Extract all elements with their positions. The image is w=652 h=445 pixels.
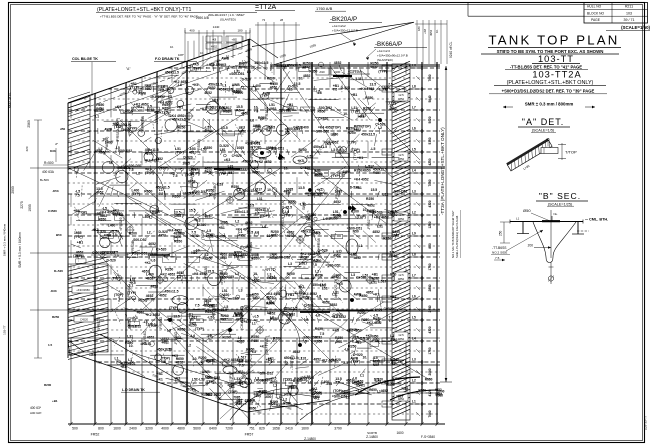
svg-text:4320: 4320: [428, 326, 432, 333]
svg-text:C4520: C4520: [48, 209, 57, 213]
svg-text:+B1: +B1: [157, 372, 163, 376]
svg-text:-FR52D: -FR52D: [97, 316, 101, 330]
svg-text:4652: 4652: [205, 393, 212, 397]
svg-text:10.: 10.: [363, 208, 368, 212]
svg-text:15.5: 15.5: [248, 203, 255, 207]
svg-text:4652: 4652: [147, 336, 155, 340]
svg-text:1.5: 1.5: [48, 343, 53, 347]
svg-text:(TOP): (TOP): [159, 167, 168, 171]
svg-text:4000: 4000: [161, 427, 169, 431]
svg-text:4852: 4852: [330, 303, 338, 307]
svg-text:(PLATE+LONGT.+STL.+BKT ONLY)-T: (PLATE+LONGT.+STL.+BKT ONLY)-TT1: [97, 7, 192, 13]
svg-text:NO.1 S/G TK BOUNDARY SEAM "A02: NO.1 S/G TK BOUNDARY SEAM "A02": [451, 210, 455, 258]
svg-text:NO.2 SIDE: NO.2 SIDE: [492, 251, 507, 255]
svg-text:7085: 7085: [233, 395, 240, 399]
svg-text:15.5: 15.5: [247, 230, 254, 234]
svg-text:D-520: D-520: [341, 86, 350, 90]
svg-text:R200: R200: [44, 383, 52, 387]
svg-text:+B1: +B1: [306, 217, 312, 221]
svg-text:C+520: C+520: [156, 247, 166, 251]
svg-text:450x11.5: 450x11.5: [165, 290, 179, 294]
svg-text:7680: 7680: [428, 410, 432, 417]
svg-text:=S00-D51: =S00-D51: [347, 227, 362, 231]
svg-text:13.5: 13.5: [267, 234, 274, 238]
svg-text:2590 A/B: 2590 A/B: [196, 16, 209, 20]
svg-text:R650: R650: [270, 317, 278, 321]
svg-text:R250: R250: [234, 312, 242, 316]
svg-text:+K1: +K1: [229, 385, 235, 389]
svg-text:1440: 1440: [213, 25, 220, 29]
svg-text:L3: L3: [239, 289, 243, 293]
svg-text:+K2 4652: +K2 4652: [220, 171, 235, 175]
svg-text:R250: R250: [366, 197, 374, 201]
svg-text:4652: 4652: [142, 270, 150, 274]
svg-text:+K5: +K5: [220, 63, 226, 67]
svg-text:R650: R650: [389, 254, 397, 258]
svg-text:L1: L1: [360, 373, 364, 377]
svg-text:2080: 2080: [428, 368, 432, 375]
svg-text:4952: 4952: [174, 214, 182, 218]
svg-text:-L53: -L53: [326, 382, 333, 386]
svg-text:AWB: AWB: [232, 83, 240, 87]
svg-text:L4: L4: [412, 169, 416, 173]
svg-text:L2: L2: [412, 211, 416, 215]
svg-text:R=500: R=500: [44, 161, 54, 165]
svg-text:450x11.5: 450x11.5: [157, 348, 171, 352]
svg-text:(SLANTED): (SLANTED): [377, 58, 393, 62]
svg-text:4852: 4852: [334, 61, 342, 65]
svg-text:450x11.5: 450x11.5: [219, 88, 233, 92]
svg-text:1760: 1760: [428, 263, 432, 270]
svg-text:-FR529: -FR529: [119, 217, 123, 230]
svg-text:R650: R650: [172, 194, 180, 198]
svg-text:4852: 4852: [398, 97, 405, 101]
svg-text:L51: L51: [222, 289, 228, 293]
svg-text:R650: R650: [369, 388, 377, 392]
svg-text:4852: 4852: [313, 358, 321, 362]
svg-text:-L6: -L6: [143, 320, 148, 324]
svg-text:39 / 71: 39 / 71: [624, 18, 635, 22]
svg-text:-L53: -L53: [216, 183, 223, 187]
svg-text:L900: L900: [334, 70, 341, 74]
svg-text:R650: R650: [98, 218, 106, 222]
svg-text:R650: R650: [363, 168, 371, 172]
svg-text:-L6: -L6: [317, 91, 322, 95]
svg-text:400: 400: [189, 29, 194, 33]
svg-text:2275: 2275: [20, 201, 24, 209]
svg-text:+S00+D1/DS1.D2/DS2 DET. REF. T: +S00+D1/DS1.D2/DS2 DET. REF. TO "39" PAG…: [502, 89, 595, 94]
svg-text:-TT-B6SS: -TT-B6SS: [492, 246, 507, 250]
svg-text:4652: 4652: [235, 401, 242, 405]
svg-text:+K2 4652: +K2 4652: [321, 358, 336, 362]
svg-text:10.: 10.: [102, 137, 107, 141]
svg-text:R650: R650: [239, 65, 247, 69]
svg-text:-S00-D52: -S00-D52: [118, 149, 133, 153]
svg-text:4652: 4652: [331, 275, 339, 279]
svg-text:4952: 4952: [176, 361, 184, 365]
svg-text:+K2 4652: +K2 4652: [367, 321, 382, 325]
svg-text:L2: L2: [378, 126, 382, 130]
svg-text:=K3: =K3: [115, 105, 121, 109]
svg-text:L400: L400: [189, 167, 197, 171]
svg-text:4652: 4652: [270, 86, 278, 90]
svg-text:-L6: -L6: [315, 313, 320, 317]
svg-text:4652: 4652: [219, 106, 227, 110]
svg-text:(TYP): (TYP): [175, 167, 184, 171]
svg-text:C+520: C+520: [241, 320, 251, 324]
svg-text:R350: R350: [309, 69, 317, 73]
svg-text:450x11.5: 450x11.5: [275, 64, 289, 68]
svg-text:450x11.5: 450x11.5: [213, 308, 227, 312]
svg-text:=K3: =K3: [355, 340, 361, 344]
svg-text:7.5: 7.5: [114, 254, 119, 258]
svg-text:=TT2A: =TT2A: [255, 4, 277, 11]
svg-text:(TYP): (TYP): [351, 360, 360, 364]
svg-text:4852: 4852: [151, 284, 159, 288]
svg-text:A90: A90: [319, 70, 325, 74]
svg-text:4652: 4652: [146, 276, 154, 280]
svg-text:7.5: 7.5: [254, 109, 259, 113]
svg-text:5160: 5160: [428, 137, 432, 144]
svg-text:4852: 4852: [94, 109, 102, 113]
svg-text:2040: 2040: [428, 305, 432, 312]
svg-text:10.: 10.: [267, 188, 272, 192]
svg-text:7.5: 7.5: [495, 256, 500, 260]
svg-text:-S00-D52: -S00-D52: [393, 190, 408, 194]
svg-text:R650: R650: [251, 257, 259, 261]
svg-text:C+520: C+520: [293, 125, 303, 129]
svg-text:7085: 7085: [401, 387, 408, 391]
svg-text:L1: L1: [279, 395, 283, 399]
svg-text:Z-14800: Z-14800: [304, 437, 316, 441]
svg-text:COL BILGE TK: COL BILGE TK: [72, 57, 98, 61]
svg-text:4652: 4652: [148, 242, 156, 246]
svg-text:R650: R650: [267, 276, 275, 280]
svg-text:880: 880: [428, 243, 432, 249]
svg-text:7200: 7200: [225, 427, 233, 431]
svg-text:450x11.5: 450x11.5: [242, 160, 256, 164]
svg-text:F-S+3540: F-S+3540: [421, 435, 435, 439]
svg-text:4652: 4652: [369, 210, 377, 214]
svg-text:L1: L1: [516, 217, 520, 221]
svg-text:4852: 4852: [95, 149, 103, 153]
svg-text:=K3: =K3: [169, 171, 175, 175]
svg-text:D-520: D-520: [242, 78, 251, 82]
svg-text:10.: 10.: [299, 77, 304, 81]
svg-text:+B1: +B1: [288, 293, 294, 297]
svg-text:10.: 10.: [435, 29, 439, 33]
svg-text:=K4 4952: =K4 4952: [158, 100, 173, 104]
svg-text:829: 829: [259, 427, 265, 431]
svg-text:F.O DRAIN TK: F.O DRAIN TK: [155, 57, 180, 61]
svg-text:L3: L3: [331, 148, 335, 152]
svg-text:10.: 10.: [193, 357, 198, 361]
svg-text:R650: R650: [249, 406, 257, 410]
svg-text:L5: L5: [412, 148, 416, 152]
svg-text:L1: L1: [412, 400, 416, 404]
svg-text:FR57: FR57: [245, 433, 254, 437]
svg-text:1905: 1905: [28, 204, 32, 212]
svg-text:4852: 4852: [284, 190, 292, 194]
svg-text:L31: L31: [234, 70, 240, 74]
svg-text:450x11.5: 450x11.5: [361, 133, 375, 137]
svg-text:751: 751: [249, 427, 255, 431]
svg-text:+K1: +K1: [357, 156, 363, 160]
svg-text:4652: 4652: [315, 174, 323, 178]
svg-text:R250: R250: [348, 131, 356, 135]
svg-text:-K8: -K8: [212, 38, 217, 42]
svg-text:L9: L9: [412, 232, 416, 236]
svg-text:"B" SEC.: "B" SEC.: [539, 191, 581, 201]
svg-text:L8: L8: [412, 253, 416, 257]
svg-text:L1: L1: [115, 357, 119, 361]
svg-text:1600: 1600: [261, 379, 268, 383]
svg-text:-K33: -K33: [50, 289, 57, 293]
svg-text:4652: 4652: [240, 381, 247, 385]
svg-text:B50: B50: [56, 233, 62, 237]
svg-text:(TYP): (TYP): [146, 297, 155, 301]
svg-text:400 63*: 400 63*: [30, 406, 42, 410]
svg-text:L1: L1: [95, 115, 99, 119]
svg-text:7.5: 7.5: [129, 168, 134, 172]
svg-text:+K1: +K1: [260, 345, 266, 349]
svg-text:1600: 1600: [113, 427, 121, 431]
svg-text:R200: R200: [273, 336, 281, 340]
svg-text:C+520: C+520: [249, 279, 259, 283]
svg-text:4852: 4852: [367, 204, 375, 208]
svg-text:7.5: 7.5: [159, 192, 164, 196]
svg-text:-S00-D52: -S00-D52: [127, 325, 142, 329]
svg-text:28: 28: [280, 18, 284, 22]
svg-text:1280: 1280: [428, 221, 432, 228]
svg-text:+K2 4652: +K2 4652: [173, 80, 188, 84]
svg-text:4852: 4852: [228, 253, 236, 257]
svg-text:L2: L2: [412, 379, 416, 383]
svg-text:L400: L400: [108, 224, 116, 228]
svg-text:R650: R650: [144, 189, 152, 193]
svg-text:L6: L6: [412, 295, 416, 299]
svg-text:N50: N50: [205, 375, 211, 379]
svg-text:Ø50: Ø50: [523, 208, 531, 213]
svg-text:(TOP): (TOP): [240, 306, 249, 310]
svg-text:+B1: +B1: [52, 399, 58, 403]
svg-text:d50: d50: [60, 127, 66, 131]
svg-text:(TOP): (TOP): [362, 124, 371, 128]
svg-text:7.5: 7.5: [320, 332, 325, 336]
svg-text:13.5: 13.5: [173, 315, 180, 319]
svg-text:L31: L31: [136, 89, 142, 93]
svg-text:4652: 4652: [245, 221, 253, 225]
svg-text:-L6: -L6: [261, 225, 266, 229]
svg-text:R650: R650: [373, 171, 381, 175]
svg-text:10.: 10.: [200, 51, 204, 55]
svg-text:L7: L7: [412, 106, 416, 110]
svg-text:D-520: D-520: [304, 304, 313, 308]
svg-text:(TYP): (TYP): [73, 254, 82, 258]
svg-text:4952: 4952: [220, 256, 228, 260]
svg-text:BLOCK NO: BLOCK NO: [587, 11, 604, 15]
svg-text:10.: 10.: [129, 344, 134, 348]
svg-text:R200: R200: [222, 336, 230, 340]
svg-text:N50: N50: [373, 363, 379, 367]
svg-text:+K1: +K1: [314, 230, 320, 234]
svg-text:R250: R250: [189, 323, 197, 327]
svg-text:7085: 7085: [436, 393, 443, 397]
svg-text:10.: 10.: [343, 112, 348, 116]
svg-text:450x11.5: 450x11.5: [234, 210, 248, 214]
svg-text:7.5: 7.5: [302, 339, 307, 343]
svg-text:+AL=12x2: +AL=12x2: [332, 24, 346, 28]
svg-text:+K5: +K5: [297, 159, 303, 163]
svg-text:L3: L3: [255, 377, 259, 381]
svg-text:L1: L1: [276, 403, 280, 407]
svg-text:R250: R250: [346, 127, 354, 131]
svg-text:+B1: +B1: [351, 93, 357, 97]
svg-text:R650: R650: [177, 327, 185, 331]
svg-text:L400: L400: [253, 84, 261, 88]
svg-text:L2: L2: [187, 344, 191, 348]
svg-text:4952: 4952: [159, 234, 167, 238]
svg-text:HULL NO: HULL NO: [587, 5, 602, 9]
svg-text:L51: L51: [126, 123, 132, 127]
svg-text:4852: 4852: [372, 230, 380, 234]
svg-text:4652: 4652: [346, 379, 353, 383]
svg-text:103-TT: 103-TT: [538, 54, 574, 64]
svg-text:-L5: -L5: [370, 147, 375, 151]
svg-text:SHELL PLATE(KEEL) 14x2.5 AH36: SHELL PLATE(KEEL) 14x2.5 AH36: [455, 215, 459, 258]
svg-text:L1: L1: [152, 322, 156, 326]
svg-text:+K1: +K1: [145, 261, 151, 265]
svg-text:2410: 2410: [285, 427, 293, 431]
svg-text:TANK TOP PLAN: TANK TOP PLAN: [489, 33, 620, 48]
svg-text:4320: 4320: [428, 200, 432, 207]
svg-text:5600: 5600: [193, 427, 201, 431]
svg-text:1760 A/B: 1760 A/B: [316, 6, 333, 11]
svg-text:1085: 1085: [237, 146, 245, 150]
svg-text:L3: L3: [334, 315, 338, 319]
svg-text:R650: R650: [283, 401, 291, 405]
svg-text:10.: 10.: [253, 272, 258, 276]
svg-text:4652: 4652: [159, 293, 167, 297]
svg-text:4652: 4652: [322, 301, 330, 305]
svg-text:450x11.5: 450x11.5: [165, 71, 179, 75]
svg-text:13.5: 13.5: [221, 126, 228, 130]
svg-text:D+520: D+520: [54, 269, 63, 273]
svg-text:L3: L3: [304, 317, 308, 321]
svg-text:+K5: +K5: [129, 281, 135, 285]
svg-text:5547 off CL: 5547 off CL: [8, 92, 12, 108]
svg-text:(TOP): (TOP): [114, 293, 123, 297]
svg-text:-S00-D52: -S00-D52: [132, 238, 147, 242]
svg-text:1760: 1760: [428, 347, 432, 354]
svg-text:=K4 4952: =K4 4952: [354, 178, 369, 182]
svg-text:15.5: 15.5: [294, 82, 301, 86]
svg-text:R650: R650: [288, 200, 296, 204]
svg-text:L2: L2: [109, 161, 113, 165]
svg-text:(TOP): (TOP): [333, 389, 342, 393]
svg-text:10.: 10.: [260, 117, 265, 121]
svg-text:SMR + 0.3 mm / 840mm: SMR + 0.3 mm / 840mm: [18, 232, 22, 268]
svg-text:L2: L2: [147, 231, 151, 235]
svg-text:4652: 4652: [333, 200, 341, 204]
svg-text:=K3: =K3: [224, 158, 230, 162]
svg-text:Z-14800: Z-14800: [366, 435, 378, 439]
svg-text:D-520: D-520: [220, 144, 229, 148]
svg-text:L31: L31: [356, 77, 362, 81]
svg-text:L51: L51: [320, 284, 326, 288]
svg-text:=AR7D: =AR7D: [262, 267, 276, 272]
svg-text:=S00-D51: =S00-D51: [126, 164, 141, 168]
svg-text:4952: 4952: [269, 107, 277, 111]
svg-text:(TYP): (TYP): [378, 69, 387, 73]
svg-text:+B1: +B1: [218, 226, 224, 230]
svg-text:180: 180: [237, 29, 242, 33]
svg-text:L3: L3: [308, 297, 312, 301]
svg-text:R650: R650: [251, 339, 259, 343]
svg-text:7.5: 7.5: [239, 363, 244, 367]
svg-text:(TYP): (TYP): [112, 277, 121, 281]
svg-text:(TYP): (TYP): [201, 359, 210, 363]
svg-text:4652: 4652: [354, 256, 362, 260]
svg-text:-L5: -L5: [220, 295, 225, 299]
svg-text:4652: 4652: [128, 361, 136, 365]
svg-text:D-520: D-520: [107, 259, 116, 263]
svg-text:(TYP): (TYP): [193, 66, 202, 70]
svg-text:R650: R650: [318, 110, 326, 114]
svg-text:(TYP): (TYP): [74, 235, 83, 239]
svg-text:L2: L2: [267, 311, 271, 315]
svg-text:1600: 1600: [290, 386, 297, 390]
svg-text:L3: L3: [252, 350, 256, 354]
svg-text:L1: L1: [252, 321, 256, 325]
svg-text:L1: L1: [193, 389, 197, 393]
svg-text:L31: L31: [127, 334, 133, 338]
svg-text:1085: 1085: [182, 161, 190, 165]
svg-text:4652: 4652: [208, 86, 216, 90]
svg-text:(TYP): (TYP): [387, 101, 396, 105]
svg-text:+K2 4652: +K2 4652: [145, 313, 160, 317]
svg-text:R350: R350: [354, 168, 362, 172]
svg-text:=K4 4952: =K4 4952: [167, 228, 182, 232]
svg-text:AWB: AWB: [343, 170, 351, 174]
svg-text:500: 500: [72, 427, 78, 431]
svg-text:R350: R350: [308, 213, 316, 217]
svg-text:7.5: 7.5: [333, 88, 338, 92]
svg-text:(TOP): (TOP): [260, 214, 269, 218]
svg-text:R250: R250: [299, 148, 307, 152]
svg-text:-K53: -K53: [52, 189, 59, 193]
svg-text:1085: 1085: [227, 275, 235, 279]
svg-text:73: 73: [262, 18, 266, 22]
svg-text:(SCALE=1/5): (SCALE=1/5): [532, 129, 555, 133]
svg-text:R350: R350: [174, 240, 182, 244]
svg-text:-BK66A/P: -BK66A/P: [375, 41, 402, 48]
svg-text:4652: 4652: [293, 350, 301, 354]
svg-text:-L53: -L53: [200, 147, 207, 151]
svg-text:5020: 5020: [428, 116, 432, 123]
svg-text:R250: R250: [383, 237, 391, 241]
svg-text:+K1: +K1: [200, 107, 206, 111]
svg-text:+K1: +K1: [373, 292, 379, 296]
svg-text:2900: 2900: [11, 186, 15, 194]
svg-text:(TYP): (TYP): [169, 306, 178, 310]
svg-text:4952: 4952: [429, 29, 433, 36]
svg-text:5840: 5840: [428, 95, 432, 102]
svg-text:C+520: C+520: [123, 110, 133, 114]
svg-text:4852: 4852: [366, 291, 374, 295]
svg-text:C+520: C+520: [318, 117, 328, 121]
svg-text:D-520: D-520: [205, 304, 214, 308]
